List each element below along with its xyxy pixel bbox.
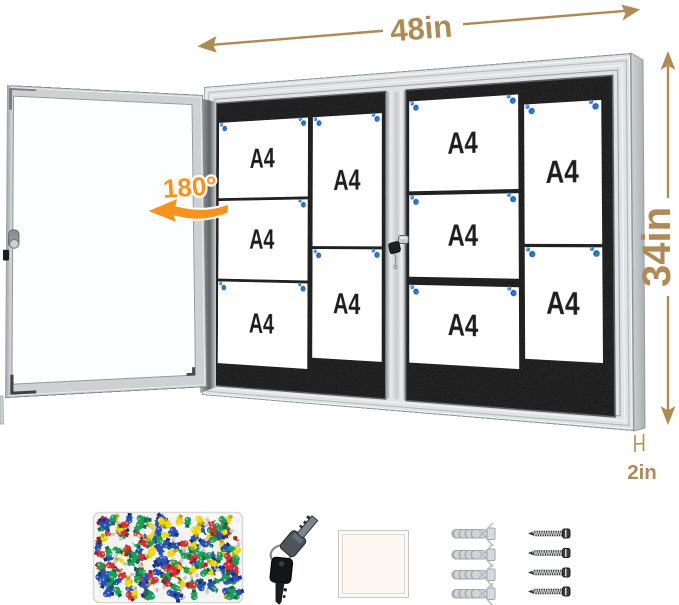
svg-text:180°: 180° bbox=[162, 170, 218, 204]
svg-text:34in: 34in bbox=[635, 207, 679, 287]
svg-text:48in: 48in bbox=[389, 9, 454, 49]
svg-text:2in: 2in bbox=[627, 461, 657, 484]
